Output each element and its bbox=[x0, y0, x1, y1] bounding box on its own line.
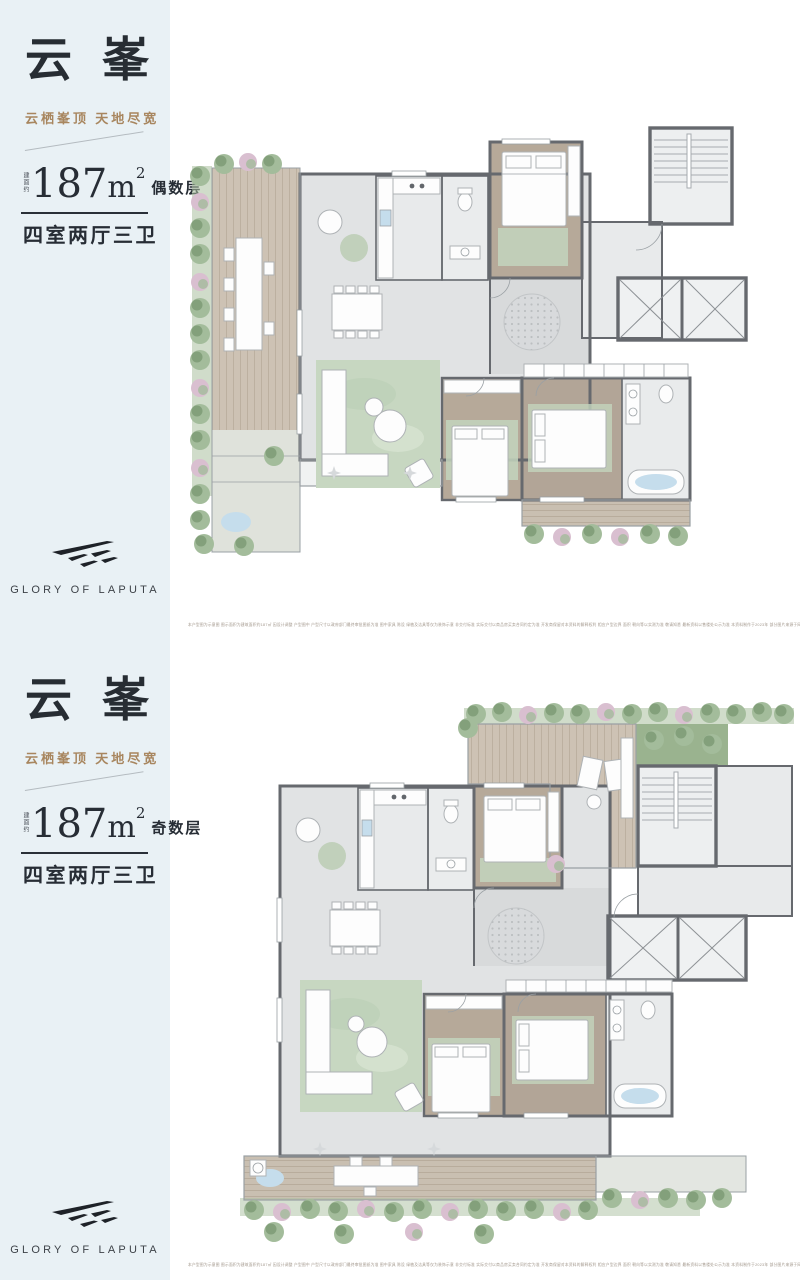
panel-even-floors: 云峯 云栖峯顶 天地尽宽 建面约 187 m 2 偶数层 四室两厅三卫 GLOR… bbox=[0, 0, 800, 640]
area-unit: m bbox=[107, 815, 135, 841]
disclaimer-text: 本户型图为示意图 图示面积为建筑面积约187㎡ 因设计调整 户型图中 户型尺寸以… bbox=[188, 621, 793, 627]
area-divider-line bbox=[21, 212, 148, 214]
area-info: 建面约 187 m 2 偶数层 bbox=[21, 168, 202, 201]
project-tagline: 云栖峯顶 天地尽宽 bbox=[25, 108, 159, 127]
disclaimer-text: 本户型图为示意图 图示面积为建筑面积约187㎡ 因设计调整 户型图中 户型尺寸以… bbox=[188, 1261, 793, 1267]
brand-logo-text: GLORY OF LAPUTA bbox=[0, 584, 170, 596]
mosaic-dots bbox=[488, 908, 544, 964]
project-title: 云峯 bbox=[25, 36, 179, 88]
area-unit: m bbox=[107, 175, 135, 201]
area-superscript: 2 bbox=[136, 804, 146, 822]
sidebar: 云峯 云栖峯顶 天地尽宽 建面约 187 m 2 偶数层 四室两厅三卫 GLOR… bbox=[0, 0, 170, 640]
laputa-wing-icon bbox=[50, 540, 120, 567]
mosaic-dots bbox=[504, 294, 560, 350]
area-superscript: 2 bbox=[136, 164, 146, 182]
area-prefix-label: 建面约 bbox=[21, 812, 30, 834]
layout-label: 四室两厅三卫 bbox=[23, 859, 158, 888]
panel-odd-floors: 云峯 云栖峯顶 天地尽宽 建面约 187 m 2 奇数层 四室两厅三卫 GLOR… bbox=[0, 640, 800, 1280]
floor-plan-even-floors bbox=[184, 126, 799, 622]
area-number: 187 bbox=[31, 808, 107, 841]
area-divider-line bbox=[21, 852, 148, 854]
diagonal-divider bbox=[25, 771, 144, 791]
brand-logo: GLORY OF LAPUTA bbox=[0, 540, 170, 596]
layout-label: 四室两厅三卫 bbox=[23, 219, 158, 248]
area-info: 建面约 187 m 2 奇数层 bbox=[21, 808, 202, 841]
area-number: 187 bbox=[31, 168, 107, 201]
diagonal-divider bbox=[25, 131, 144, 151]
sidebar: 云峯 云栖峯顶 天地尽宽 建面约 187 m 2 奇数层 四室两厅三卫 GLOR… bbox=[0, 640, 170, 1280]
area-prefix-label: 建面约 bbox=[21, 172, 30, 194]
brand-logo: GLORY OF LAPUTA bbox=[0, 1200, 170, 1256]
laputa-wing-icon bbox=[50, 1200, 120, 1227]
project-title: 云峯 bbox=[25, 676, 179, 728]
project-tagline: 云栖峯顶 天地尽宽 bbox=[25, 748, 159, 767]
floor-plan-odd-floors bbox=[184, 698, 799, 1254]
brand-logo-text: GLORY OF LAPUTA bbox=[0, 1244, 170, 1256]
